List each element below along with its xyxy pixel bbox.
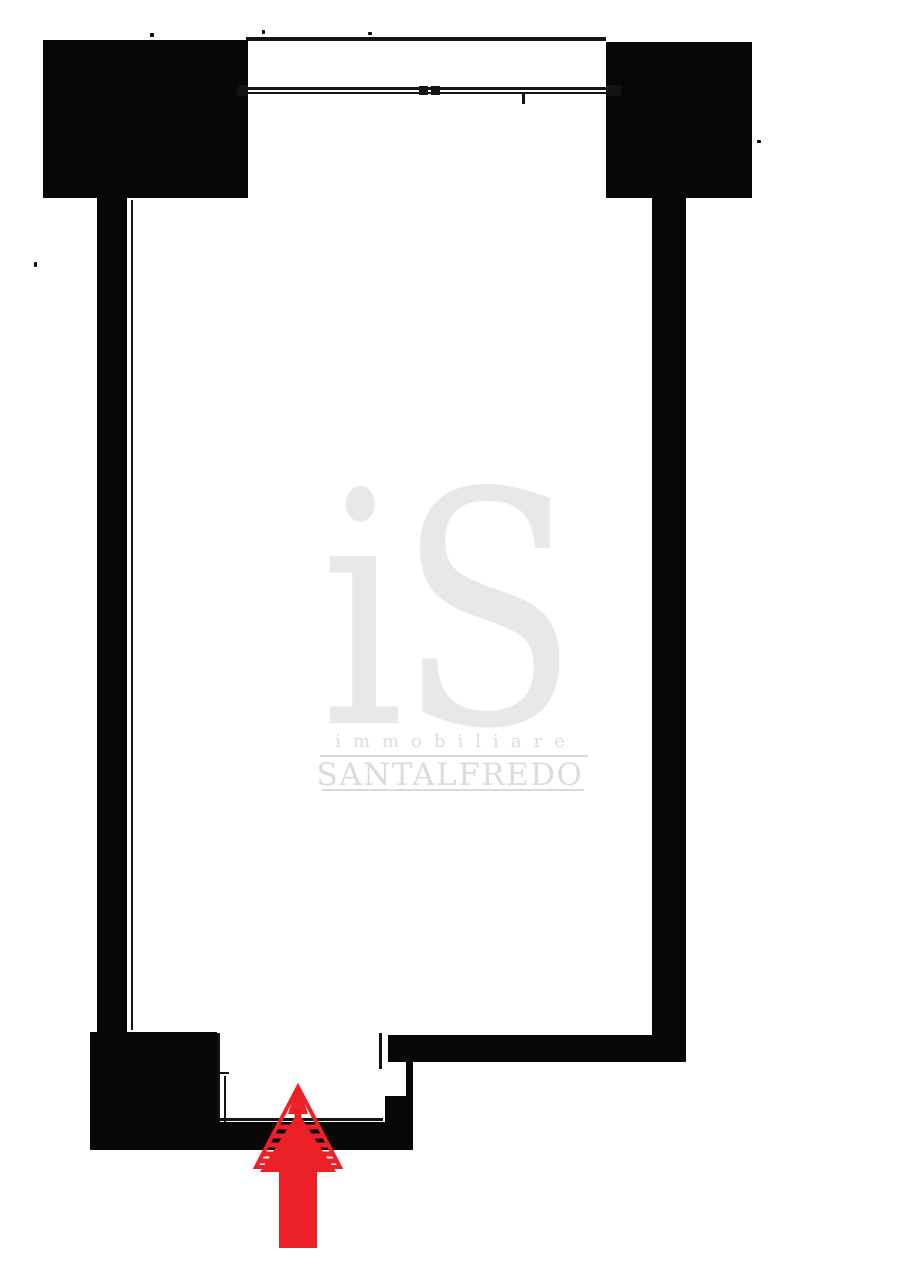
scan-speck <box>368 32 372 35</box>
scan-speck <box>150 33 154 37</box>
wall-right <box>652 196 686 1062</box>
window-jamb-left <box>237 85 248 96</box>
window-sill-line-a <box>237 87 621 90</box>
left-wall-inner-line <box>131 200 133 1030</box>
brand-tagline: immobiliare <box>302 731 598 753</box>
wall-left <box>97 196 127 1034</box>
window-sill-line-b <box>240 92 618 94</box>
scan-speck <box>614 98 617 109</box>
floor-plan-canvas: iS immobiliare SANTALFREDO <box>0 0 897 1280</box>
vestibule-right-line <box>379 1033 382 1069</box>
scan-speck <box>34 262 37 267</box>
scan-speck <box>262 30 265 34</box>
vestibule-step-tick <box>217 1072 229 1074</box>
window-mullion-a <box>419 86 428 95</box>
wall-pillar-top-right <box>606 42 752 198</box>
wall-pillar-top-left <box>43 40 248 198</box>
window-mullion-b <box>431 86 440 95</box>
vestibule-left-line <box>217 1033 220 1122</box>
window-tick <box>522 94 525 104</box>
window-outer-line <box>246 37 606 41</box>
scan-speck <box>757 140 761 143</box>
brand-logo: iS <box>320 451 572 773</box>
brand-name: SANTALFREDO <box>302 758 598 792</box>
watermark-rule <box>322 789 584 791</box>
wall-bottom-right-horizontal <box>388 1035 684 1062</box>
entrance-arrow-icon <box>245 1078 350 1253</box>
window-jamb-right <box>607 85 621 96</box>
doorway-notch <box>382 1062 406 1096</box>
vestibule-left-line-inner <box>224 1076 226 1122</box>
